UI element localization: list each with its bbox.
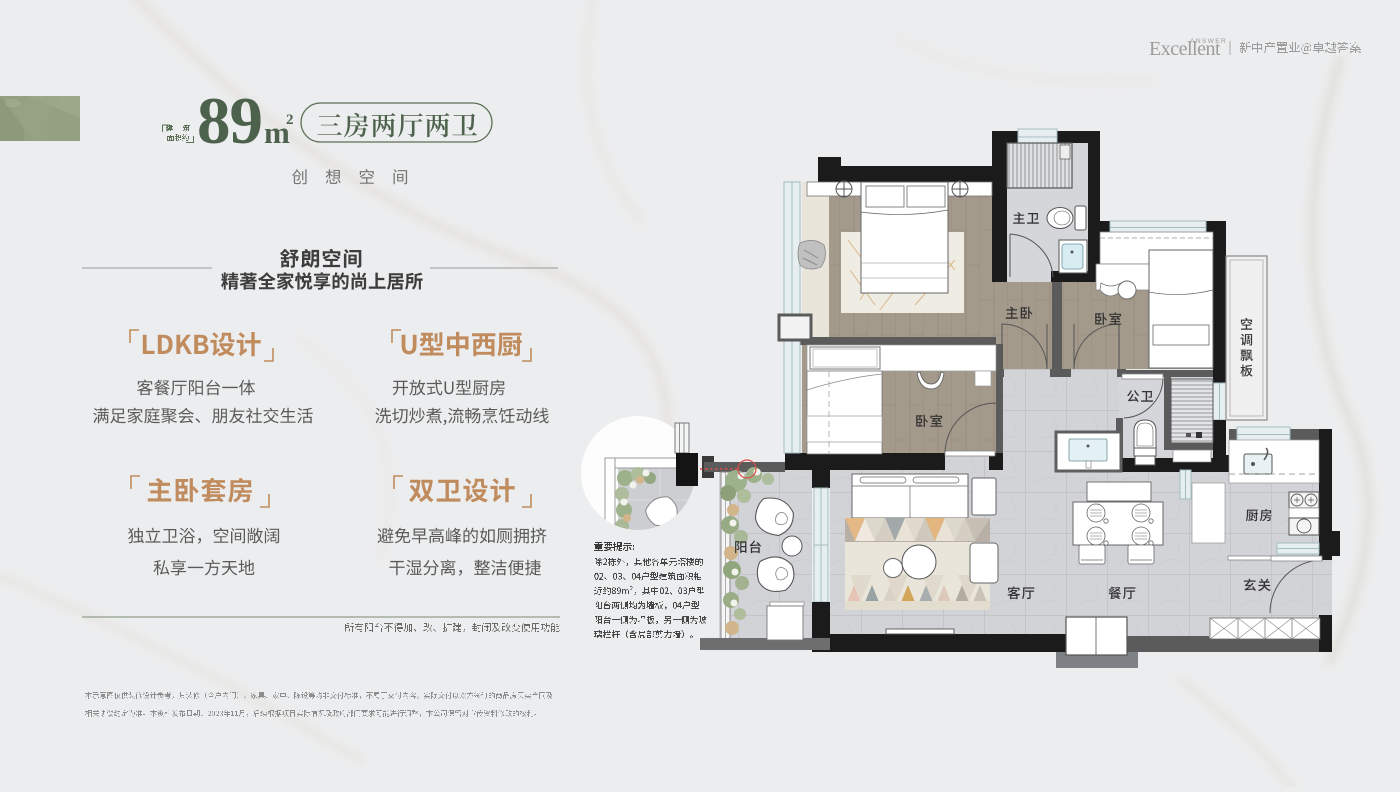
svg-text:ANSWER: ANSWER xyxy=(1190,38,1227,45)
svg-text:89: 89 xyxy=(197,84,262,158)
svg-text:2: 2 xyxy=(286,112,294,128)
